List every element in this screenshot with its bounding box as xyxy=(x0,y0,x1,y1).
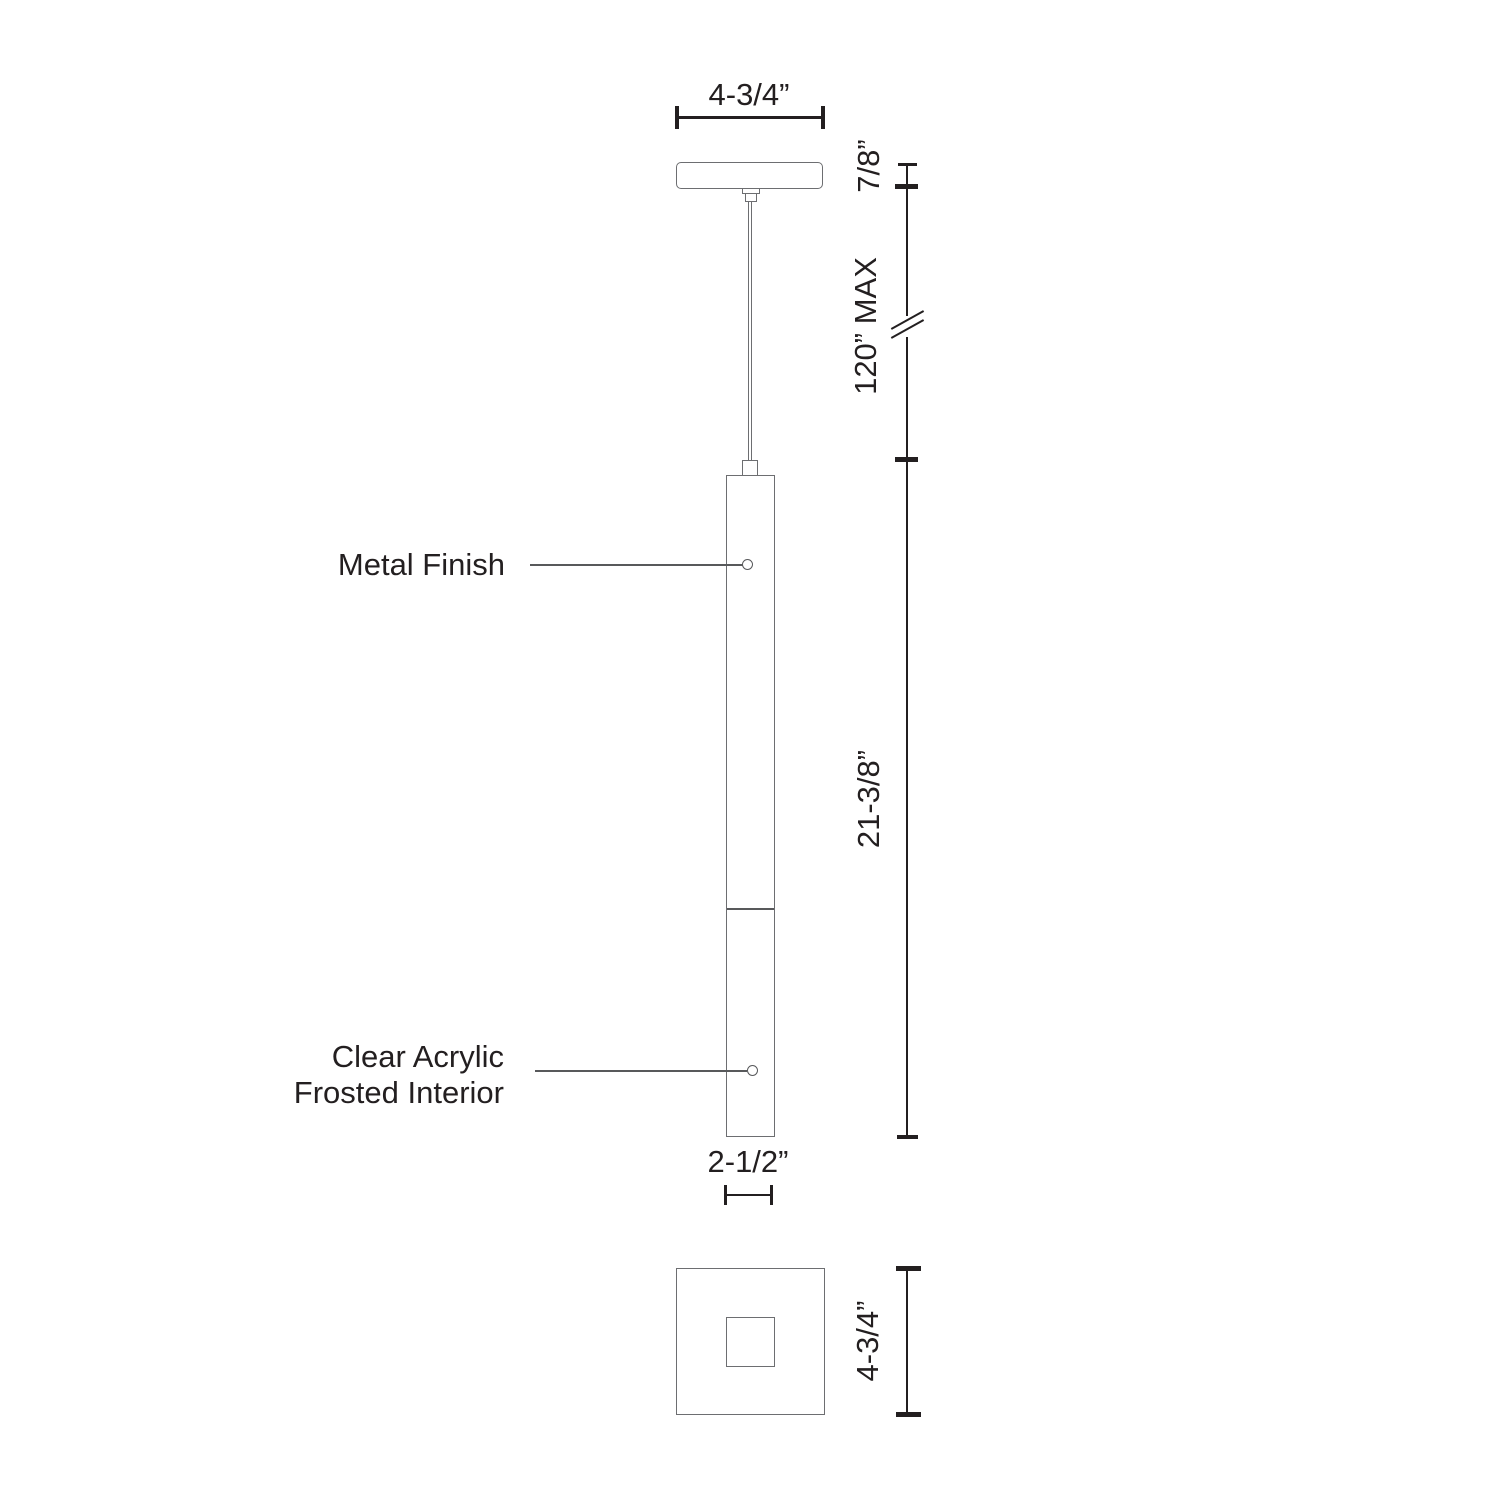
suspension-cord xyxy=(748,202,752,461)
canopy-plan-dimension-label: 4-3/4” xyxy=(850,1271,886,1411)
body-width-dimension-label: 2-1/2” xyxy=(660,1144,836,1180)
cord-length-dimension-label: 120” MAX xyxy=(848,231,884,421)
acrylic-leader-dot xyxy=(747,1065,758,1076)
dimension-line-segment xyxy=(906,462,908,1137)
acrylic-label-line2: Frosted Interior xyxy=(278,1075,504,1111)
dimension-line-segment xyxy=(906,337,908,459)
canopy-front-view xyxy=(676,162,823,189)
cord-grip xyxy=(745,193,757,202)
metal-finish-leader-dot xyxy=(742,559,753,570)
dimension-tick-plan-bottom xyxy=(896,1412,921,1417)
pendant-top-connector xyxy=(742,460,758,476)
canopy-width-dimension-line xyxy=(677,116,823,119)
canopy-width-dimension-label: 4-3/4” xyxy=(659,77,839,113)
technical-drawing: 4-3/4” Metal Finish Clear Acrylic Froste… xyxy=(0,0,1500,1500)
metal-finish-label: Metal Finish xyxy=(295,547,505,583)
dimension-tick-body-bottom xyxy=(897,1135,918,1139)
dimension-tick-right xyxy=(770,1185,773,1205)
material-divider-line xyxy=(727,908,774,910)
dimension-line-segment xyxy=(906,189,908,316)
canopy-plan-dimension-line xyxy=(906,1268,908,1415)
canopy-height-dimension-label: 7/8” xyxy=(851,111,887,221)
pendant-body xyxy=(726,475,775,1137)
dimension-tick-left xyxy=(675,106,679,129)
canopy-plan-center-hole xyxy=(726,1317,775,1367)
body-width-dimension-line xyxy=(726,1194,773,1196)
dimension-tick-right xyxy=(821,106,825,129)
dimension-tick-plan-top xyxy=(896,1266,921,1271)
metal-finish-leader-line xyxy=(530,564,743,566)
acrylic-label-line1: Clear Acrylic xyxy=(278,1039,504,1075)
dimension-line-segment xyxy=(906,165,908,186)
dimension-tick-left xyxy=(724,1185,727,1205)
acrylic-leader-line xyxy=(535,1070,747,1072)
body-height-dimension-label: 21-3/8” xyxy=(851,724,887,874)
acrylic-label: Clear Acrylic Frosted Interior xyxy=(278,1039,504,1111)
